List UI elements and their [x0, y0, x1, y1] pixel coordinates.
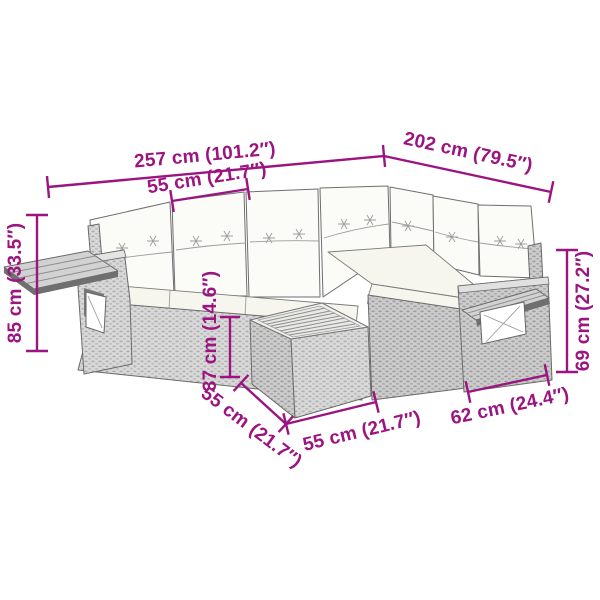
dim-label-table-height: 37 cm (14.6″) — [200, 271, 221, 392]
dim-label-arm-height: 69 cm (27.2″) — [573, 251, 594, 372]
dim-label-total-depth: 202 cm (79.5″) — [402, 128, 535, 176]
dim-label-table-width: 55 cm (21.7″) — [301, 407, 423, 456]
side-table-illustration — [250, 303, 371, 418]
dimension-arm-height: 69 cm (27.2″) — [556, 250, 594, 372]
dimension-diagram: 257 cm (101.2″) 202 cm (79.5″) 55 cm (21… — [0, 0, 600, 600]
diagram-canvas: 257 cm (101.2″) 202 cm (79.5″) 55 cm (21… — [0, 0, 600, 600]
dim-label-back-height: 85 cm (33.5″) — [5, 223, 26, 344]
table-front-face — [291, 327, 371, 418]
